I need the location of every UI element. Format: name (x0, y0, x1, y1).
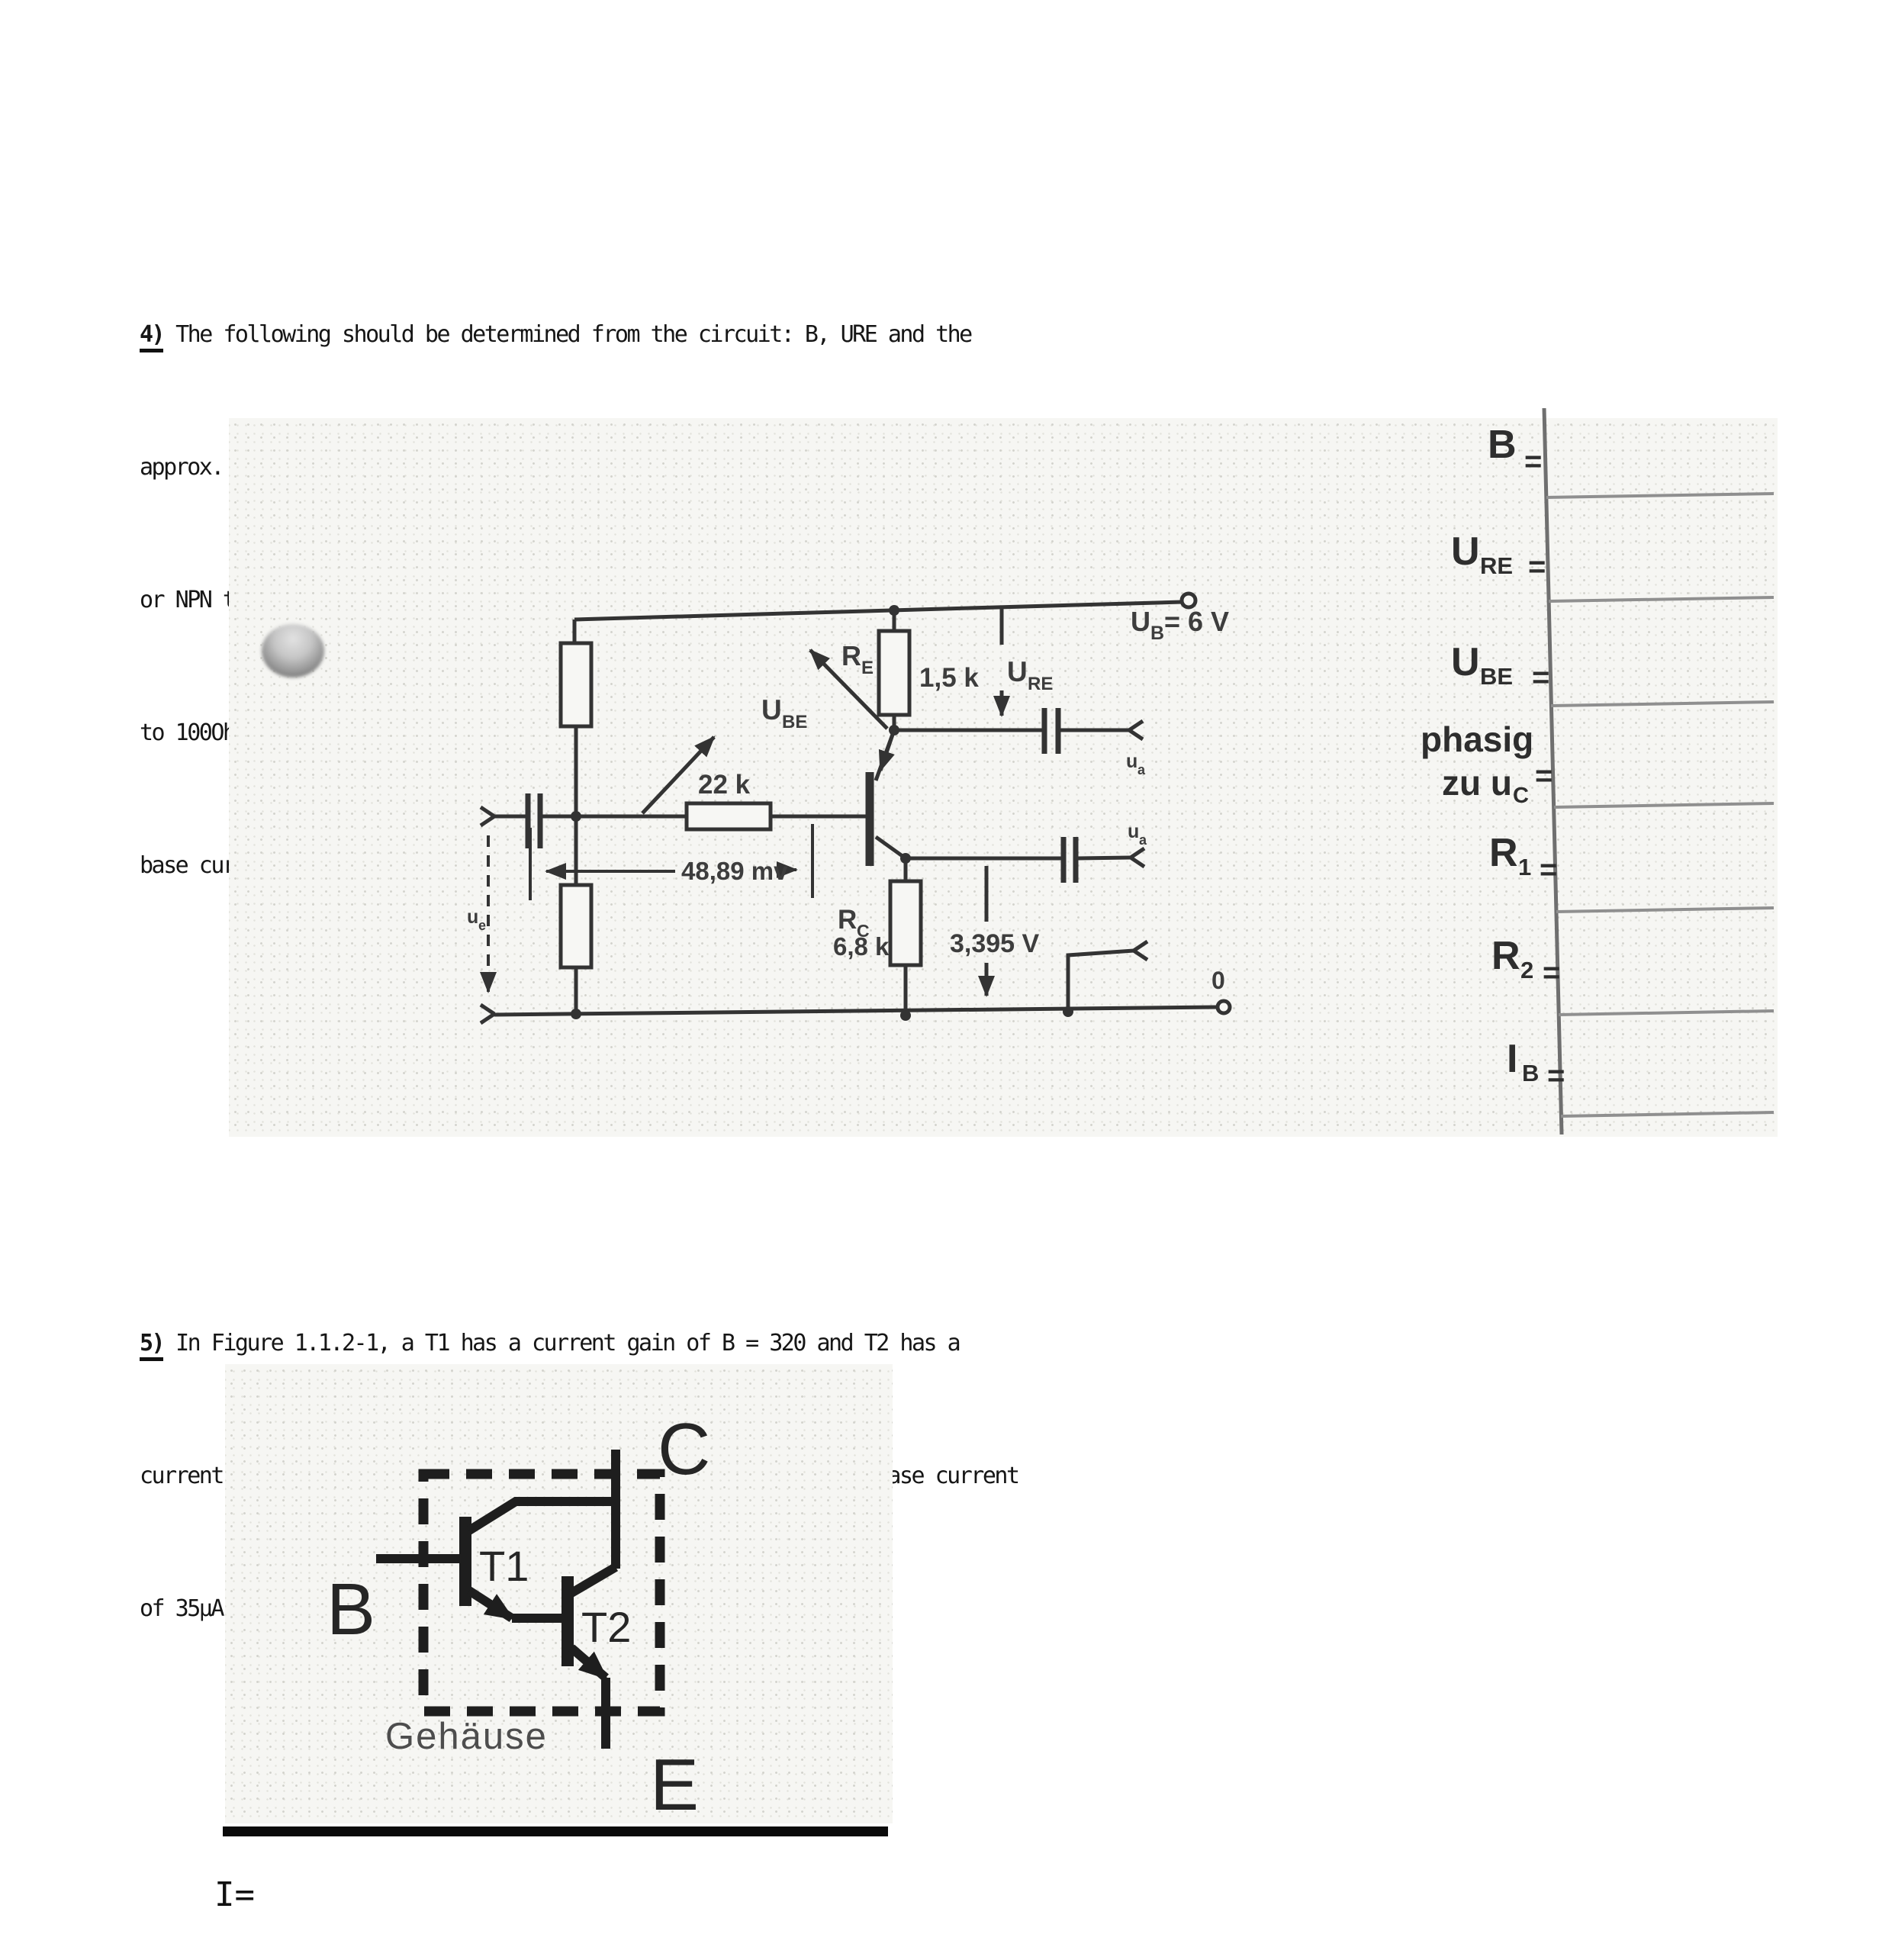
t2-emitter-arrow (571, 1648, 606, 1678)
terminal-b-label: B (327, 1569, 375, 1650)
t1-collector-wire (469, 1501, 616, 1530)
t1-label: T1 (479, 1542, 529, 1590)
section-divider-line (223, 1826, 888, 1836)
worksheet-page: 4)The following should be determined fro… (0, 0, 1892, 1960)
housing-dashed-box (423, 1474, 660, 1711)
housing-label: Gehäuse (385, 1716, 548, 1757)
t2-label: T2 (581, 1603, 631, 1651)
terminal-e-label: E (650, 1744, 699, 1826)
t1-emitter-arrow (469, 1591, 512, 1618)
terminal-c-label: C (658, 1408, 710, 1490)
figure5-darlington (376, 1450, 660, 1749)
answer-current-label[interactable]: I= (214, 1875, 255, 1914)
darlington-diagram-svg: C B E T1 T2 Gehäuse (0, 0, 1892, 1960)
t2-collector-wire (571, 1567, 616, 1593)
